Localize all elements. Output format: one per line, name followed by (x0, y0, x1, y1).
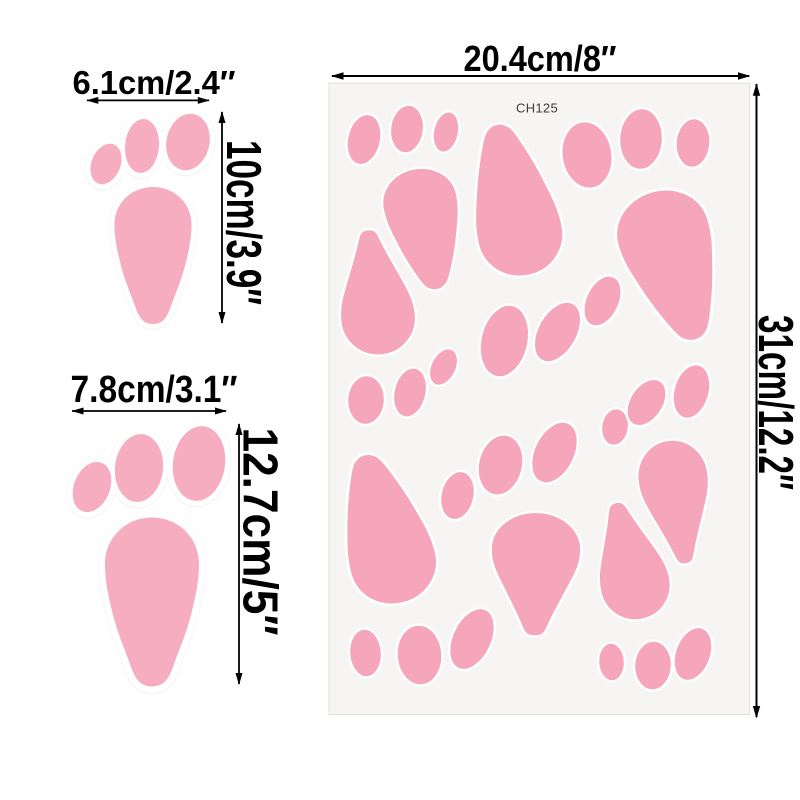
svg-text:20.4cm/8″: 20.4cm/8″ (464, 38, 617, 79)
svg-text:7.8cm/3.1″: 7.8cm/3.1″ (71, 369, 238, 411)
svg-text:12.7cm/5″: 12.7cm/5″ (233, 428, 287, 636)
svg-text:6.1cm/2.4″: 6.1cm/2.4″ (73, 64, 236, 101)
svg-text:CH125: CH125 (516, 101, 558, 116)
svg-text:31cm/12.2″: 31cm/12.2″ (748, 315, 800, 490)
svg-text:10cm/3.9″: 10cm/3.9″ (216, 140, 270, 305)
